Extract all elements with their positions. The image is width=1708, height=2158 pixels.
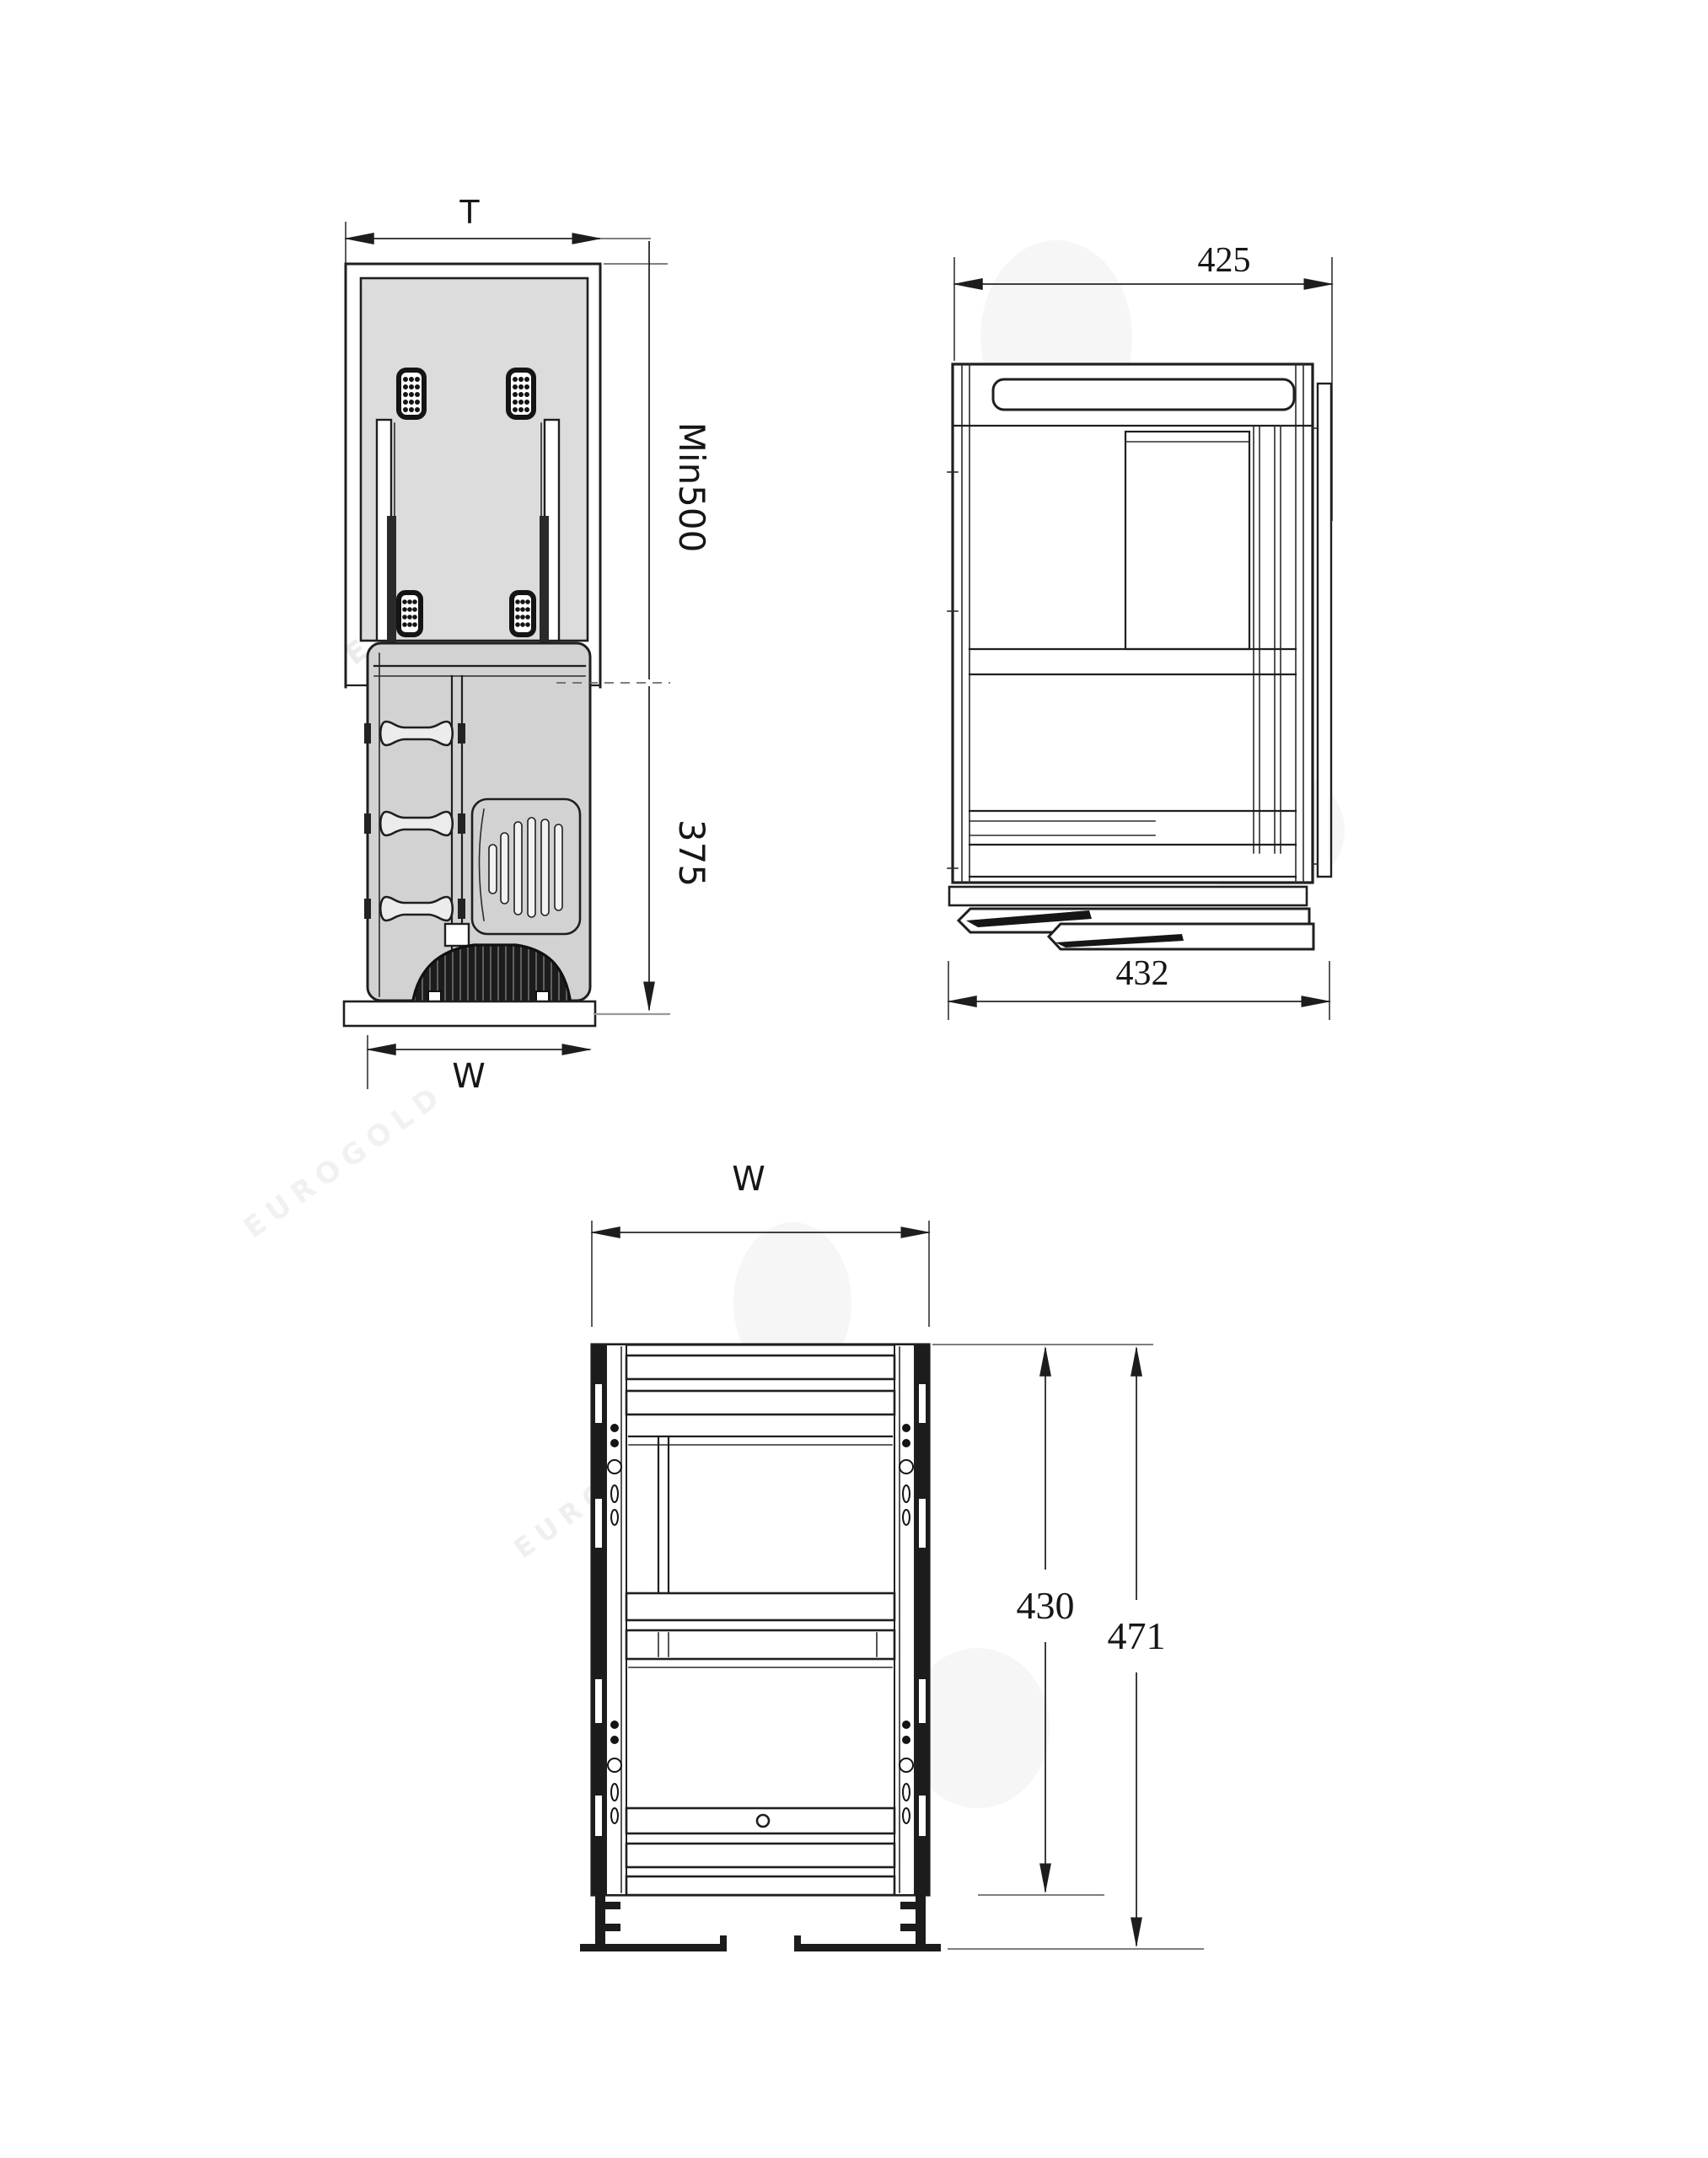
dimension-W-top: W bbox=[368, 1035, 590, 1096]
front-view: W bbox=[580, 1160, 1204, 1951]
front-frame bbox=[580, 1345, 941, 1951]
side-base-slides bbox=[949, 887, 1313, 949]
dimension-min500-label: Min500 bbox=[671, 422, 712, 553]
dimension-471: 471 bbox=[948, 1348, 1204, 1949]
divider-connector bbox=[445, 924, 469, 946]
foot-left bbox=[595, 1895, 620, 1944]
top-view: T bbox=[344, 194, 712, 1096]
basket bbox=[344, 643, 595, 1026]
dimension-432-label: 432 bbox=[1116, 954, 1169, 993]
slide-rail-front-left bbox=[592, 1345, 626, 1895]
technical-drawing-page: EUROGOLD EUROGOLD EUROGOLD EUROGOLD EURO… bbox=[0, 0, 1708, 2158]
bottle-rack bbox=[472, 799, 580, 934]
pullout-basket-drawing: EUROGOLD EUROGOLD EUROGOLD EUROGOLD EURO… bbox=[0, 0, 1708, 2158]
top-rail-slot bbox=[993, 379, 1294, 410]
slide-rail-front-right bbox=[894, 1345, 929, 1895]
dimension-375: 375 bbox=[594, 686, 712, 1014]
mounting-bracket bbox=[399, 593, 421, 635]
mounting-bracket bbox=[399, 370, 424, 417]
mounting-bracket bbox=[508, 370, 534, 417]
front-panel-strip bbox=[344, 1001, 595, 1026]
dimension-375-label: 375 bbox=[671, 819, 712, 887]
mounting-feet bbox=[580, 1895, 941, 1951]
rear-mount-bar bbox=[1318, 384, 1331, 877]
dimension-T-label: T bbox=[459, 194, 480, 231]
side-frame bbox=[948, 364, 1331, 883]
dimension-432: 432 bbox=[948, 954, 1329, 1020]
screw-hole bbox=[757, 1815, 769, 1827]
dimension-471-label: 471 bbox=[1108, 1614, 1166, 1657]
base-plate bbox=[949, 887, 1307, 905]
foot-right bbox=[900, 1895, 926, 1944]
dimension-425-label: 425 bbox=[1198, 241, 1251, 280]
dimension-W-top-label: W bbox=[452, 1057, 486, 1096]
slide-member-right bbox=[540, 516, 549, 647]
dimension-min500: Min500 bbox=[604, 241, 712, 679]
slide-member-left bbox=[387, 516, 396, 647]
dimension-W-front-label: W bbox=[732, 1160, 765, 1199]
watermark-text: EUROGOLD bbox=[238, 1077, 452, 1246]
inner-panel bbox=[1125, 432, 1249, 649]
dimension-T: T bbox=[346, 194, 651, 280]
dimension-430-label: 430 bbox=[1017, 1584, 1075, 1627]
mounting-bracket bbox=[512, 593, 534, 635]
